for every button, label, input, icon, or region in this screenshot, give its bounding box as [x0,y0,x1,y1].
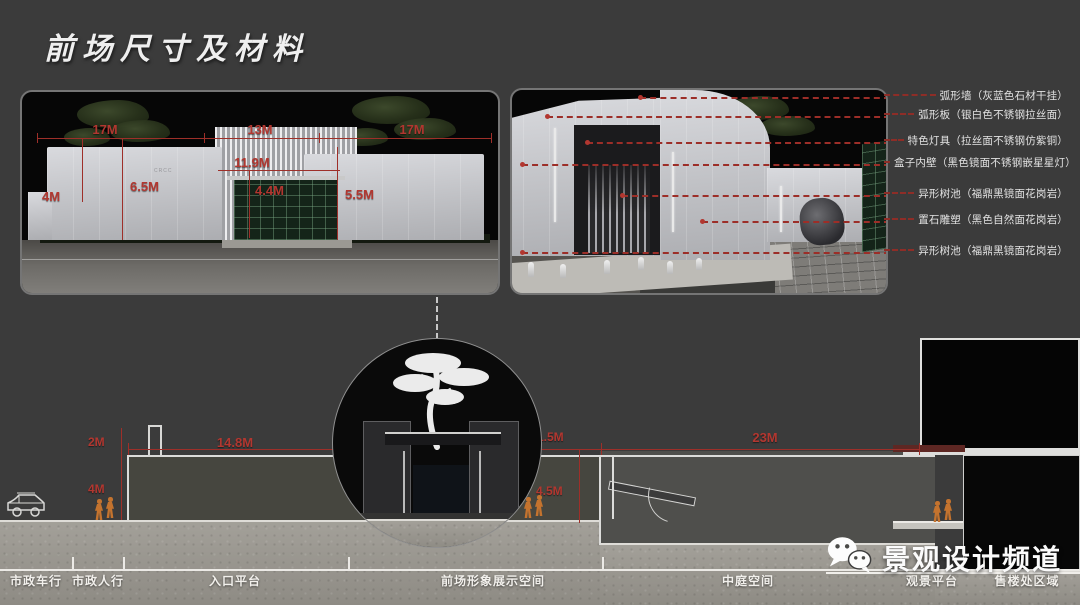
annotation-label: 弧形墙（灰蓝色石材干挂） [940,88,1068,103]
light-rod [554,128,556,222]
leader-dot [545,114,550,119]
gate-glass-center [413,465,469,519]
annotation-row: 弧形墙（灰蓝色石材干挂） [884,87,1068,103]
annotation-row: 弧形板（银白色不锈钢拉丝面） [884,106,1068,122]
elev-dim-tick [319,133,320,143]
zone-label-court: 中庭空间 [698,572,798,589]
wall-sign: CRCC [154,168,172,174]
zone-tick [348,557,350,569]
person-icon [944,499,952,520]
leader-dot [638,95,643,100]
elev-dim-tick [491,133,492,143]
perspective-render [510,88,888,295]
dim-court-width: 23M [745,431,785,444]
elev-dim-55m-line [337,147,338,240]
gate-beam [385,432,501,445]
wechat-icon [826,534,874,581]
bollard [638,257,644,270]
annotation-row: 特色灯具（拉丝面不锈钢仿紫铜） [884,132,1068,148]
section-dim-4m-line [121,449,122,520]
dim-parapet: 2M [88,436,105,448]
bollard [528,262,534,277]
waterfall-feature [588,165,650,253]
dim-top-center: 13M [240,123,280,136]
light-rod [780,186,782,232]
zone-label-sidewalk: 市政人行 [66,572,130,589]
elev-dim-gate-line [218,170,340,171]
bollard [667,261,673,274]
elev-dim-65m-line [122,139,123,240]
dim-plaza-width: 14.8M [205,436,265,449]
zone-label-road: 市政车行 [4,572,68,589]
annotation-label: 异形树池（福鼎黑镜面花岗岩） [918,186,1068,201]
section-parapet-post [148,425,162,457]
gate-rod [403,451,405,515]
watermark: 景观设计频道 [826,534,1062,581]
leader-dot [520,250,525,255]
annotation-leader [884,139,904,141]
leader-line [522,252,888,254]
elev-dim-tick [204,133,205,143]
leader-line [640,97,888,99]
annotation-label: 置石雕塑（黑色自然面花岗岩） [918,212,1068,227]
gate-ground [333,519,542,548]
bollard [696,258,702,270]
gate-detail-circle [332,338,542,548]
dim-top-left: 17M [85,123,125,136]
dim-top-right: 17M [392,123,432,136]
annotation-label: 弧形板（银白色不锈钢拉丝面） [918,107,1068,122]
section-dim-tick [128,443,129,455]
leader-dot [585,140,590,145]
leader-line [522,164,888,166]
section-walkway-slab [893,521,965,529]
presentation-slide: 前场尺寸及材料 2M 4M 14.8M 1.5M 4.5M 23M [0,0,1080,605]
bollard [560,264,566,278]
render-ground [22,240,500,295]
leader-line [547,116,888,118]
person-icon [95,499,103,520]
elev-dim-inner-line [249,170,250,238]
leader-dot [700,219,705,224]
dim-gate-inner: 4.4M [255,184,284,197]
car-icon [5,488,47,527]
curb-line [22,259,500,260]
page-title: 前场尺寸及材料 [44,24,310,68]
annotation-row: 置石雕塑（黑色自然面花岗岩） [884,211,1068,227]
section-wall-edge-left [127,455,129,520]
watermark-text: 景观设计频道 [882,538,1062,578]
bollard [604,260,610,274]
leader-line [702,221,888,223]
dim-left-wall: 4M [42,190,60,203]
person-icon [106,497,114,518]
section-dim-2m-line [121,428,122,449]
leader-dot [620,193,625,198]
elev-dim-top-line [37,138,492,139]
section-dim-45m-line [579,449,580,523]
person-icon [933,501,941,522]
annotation-leader [884,113,914,115]
section-sketch-post [612,455,614,519]
annotation-label: 特色灯具（拉丝面不锈钢仿紫铜） [908,133,1069,148]
annotation-label: 异形树池（福鼎黑镜面花岗岩） [918,243,1068,258]
gate-rod [479,451,481,515]
zone-label-frontshow: 前场形象展示空间 [423,572,563,589]
section-dim-tick [601,443,602,455]
annotation-leader [884,94,936,96]
tree-canopy [760,116,815,136]
gate-steps [222,240,352,248]
dim-gate-width: 11.9M [222,156,282,169]
zone-tick [602,557,604,569]
annotation-row: 盒子内壁（黑色镜面不锈钢嵌星星灯） [884,154,1068,170]
section-wall-edge-middle [599,455,601,545]
front-elevation-render: CRCC 17M 13M 17M 4M 6.5M 11.9M 4.4M 5.5M [20,90,500,295]
annotation-leader [884,249,914,251]
annotation-leader [884,192,914,194]
annotation-leader [884,218,914,220]
detail-connector-dashed-line [436,297,438,339]
dim-wall-height: 4M [88,483,105,495]
leader-line [587,142,888,144]
dim-right-wall: 5.5M [345,188,374,201]
annotation-label: 盒子内壁（黑色镜面不锈钢嵌星星灯） [894,155,1076,170]
elev-dim-tick [37,133,38,143]
zone-tick [123,557,125,569]
dim-mid-wall: 6.5M [130,180,159,193]
section-dim-tick [919,443,920,455]
annotation-row: 异形树池（福鼎黑镜面花岗岩） [884,185,1068,201]
zone-tick [72,557,74,569]
zone-label-entry: 入口平台 [185,572,285,589]
leader-line [622,195,888,197]
elev-dim-4m-line [82,139,83,202]
leader-dot [520,162,525,167]
annotation-leader [884,161,890,163]
annotation-row: 异形树池（福鼎黑镜面花岗岩） [884,242,1068,258]
section-sales-building-upper [920,338,1080,450]
